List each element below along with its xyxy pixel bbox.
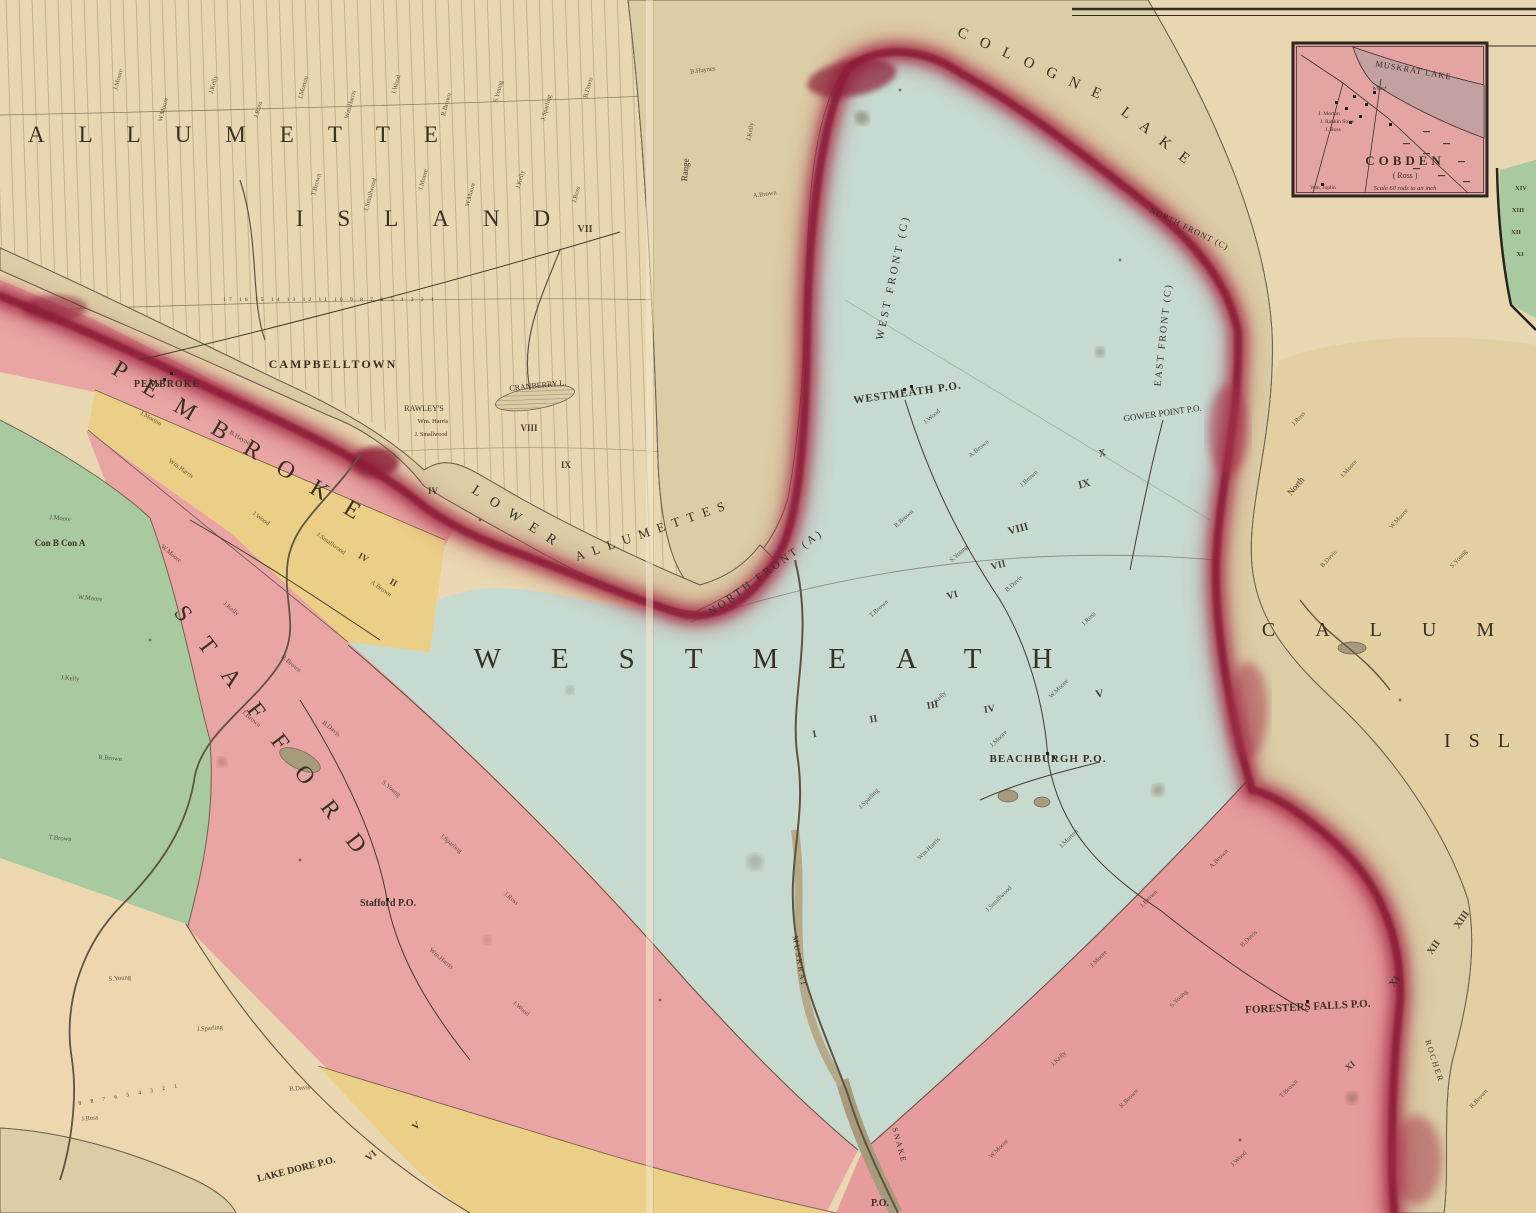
concession-numeral: XI xyxy=(1516,251,1524,258)
concession-numeral: XII xyxy=(1511,229,1521,236)
concession-numeral: IX xyxy=(561,460,572,470)
concession-numeral: XIII xyxy=(1512,207,1525,214)
concession-numeral: IV xyxy=(428,486,439,496)
map-fold-seam xyxy=(646,0,654,1213)
inset-subtitle: ( Ross ) xyxy=(1393,171,1418,180)
island-lot-numbers: 17 16 15 14 13 12 11 10 9 8 7 6 5 4 3 2 … xyxy=(223,297,437,303)
smallwood-label: J. Smallwood xyxy=(415,432,448,438)
beachburgh-po-label: BEACHBURGH P.O. xyxy=(990,753,1107,765)
inset-resident-2: J. Rankin Store xyxy=(1320,119,1354,125)
settler-name: J.Ross xyxy=(81,1114,99,1122)
wm-harris-label: Wm. Harris xyxy=(418,418,449,425)
po-cutoff-label: P.O. xyxy=(871,1198,889,1209)
inset-resident-1: J. Morton xyxy=(1318,111,1340,117)
inset-scale-note: Scale 60 rods to an inch xyxy=(1374,185,1437,192)
inset-title: COBDEN xyxy=(1365,153,1445,168)
concession-numeral: III xyxy=(926,699,940,712)
rawleys-label: RAWLEY'S xyxy=(404,404,443,413)
range-label: Range xyxy=(679,158,691,182)
pembroke-town-label: PEMBROKE xyxy=(134,379,200,390)
calumet-name-line1: CALUM xyxy=(1262,619,1534,641)
con-b-con-a-label: Con B Con A xyxy=(35,538,86,548)
concession-numeral: XIV xyxy=(1515,185,1527,192)
island-name-line1: ALLUMETTE xyxy=(28,122,472,147)
campbelltown-label: CAMPBELLTOWN xyxy=(269,357,398,371)
concession-numeral: VIII xyxy=(520,423,538,433)
island-name-line2: ISLAND xyxy=(296,206,584,231)
inset-resident-3: J. Ross xyxy=(1325,127,1341,133)
historical-county-map: MUSKRAT LAKEWharfJ. MortonJ. Rankin Stor… xyxy=(0,0,1536,1213)
calumet-name-line2: ISL xyxy=(1444,730,1528,752)
stafford-po-label: Stafford P.O. xyxy=(360,898,417,909)
map-canvas: MUSKRAT LAKEWharfJ. MortonJ. Rankin Stor… xyxy=(0,0,1536,1213)
inset-wharf-label: Wharf xyxy=(1372,85,1387,92)
cobden-inset: MUSKRAT LAKEWharfJ. MortonJ. Rankin Stor… xyxy=(1293,43,1487,196)
westmeath-township-name: WESTMEATH xyxy=(474,643,1103,675)
inset-resident-4: Wm. Joplin xyxy=(1310,185,1336,191)
